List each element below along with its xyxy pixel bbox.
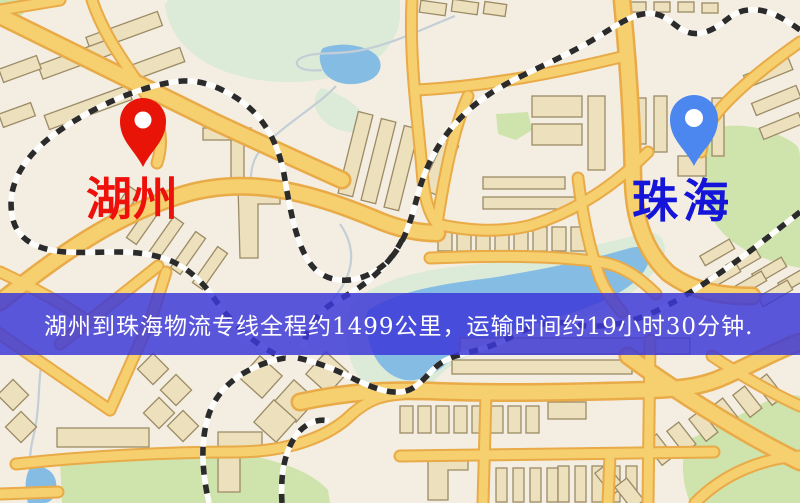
origin-city-label: 湖州 [86,176,178,222]
destination-city-label: 珠海 [632,178,734,224]
route-info-banner: 湖州到珠海物流专线全程约1499公里，运输时间约19小时30分钟. [0,293,800,355]
route-info-text: 湖州到珠海物流专线全程约1499公里，运输时间约19小时30分钟. [0,307,753,341]
map-canvas [0,0,800,503]
map-view: 湖州 珠海 湖州到珠海物流专线全程约1499公里，运输时间约19小时30分钟. [0,0,800,503]
